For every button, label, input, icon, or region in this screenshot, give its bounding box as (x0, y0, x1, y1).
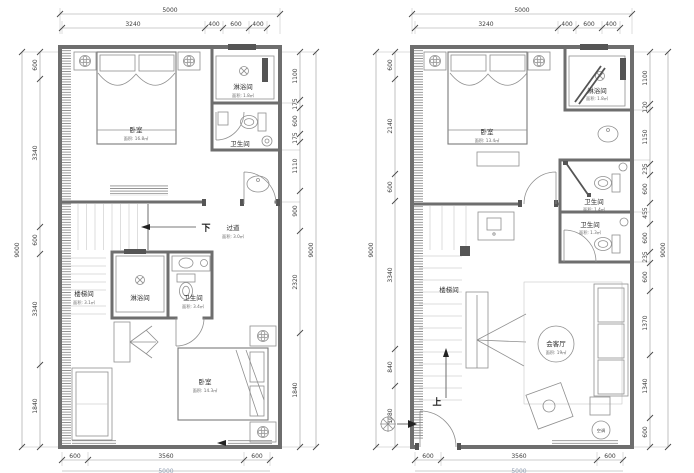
dim-top-total: 5000 (514, 7, 529, 14)
ceiling-fan-icon (430, 56, 441, 67)
right-plan-walls (412, 44, 632, 452)
lounge-chair (526, 383, 573, 429)
left-winder-stair (114, 322, 158, 362)
dim-bottom-seg-1: 600 (422, 453, 434, 460)
dim-left-seg-3: 600 (387, 181, 394, 193)
dim-bottom-seg-2: 3560 (158, 453, 173, 460)
dim-right-seg-6: 900 (292, 205, 299, 217)
dim-left-seg-1: 600 (32, 59, 39, 71)
right-wc-lower: 卫生间 面积: 1.3㎡ (564, 218, 628, 262)
right-living-room: 空调 会客厅 面积: 19㎡ (524, 282, 628, 439)
dim-bottom-seg-2: 3560 (511, 453, 526, 460)
dim-left-seg-5: 1840 (32, 398, 39, 413)
dim-top-seg-3: 600 (583, 21, 595, 28)
dim-left-seg-2: 3340 (32, 145, 39, 160)
right-wc-upper: 卫生间 面积: 1.4㎡ (563, 161, 627, 213)
dim-bottom-total: 5000 (158, 468, 173, 473)
floor-plans-canvas: 5000 3240 400 600 400 9000 600 3340 600 … (0, 0, 694, 473)
dim-right-seg-4: 175 (292, 132, 299, 144)
toilet-icon (595, 174, 621, 192)
dim-left-seg-4: 3340 (32, 301, 39, 316)
dim-top-seg-1: 3240 (125, 21, 140, 28)
room-label-shower-mid: 淋浴间 (130, 293, 150, 302)
dim-right-seg-7: 2320 (292, 274, 299, 289)
dim-right-total: 9000 (308, 242, 315, 257)
room-area-bedroom-top: 面积: 16.8㎡ (124, 135, 149, 142)
dim-bottom-seg-1: 600 (69, 453, 81, 460)
dim-right-seg-7: 600 (642, 232, 649, 244)
dim-right-seg-2: 175 (292, 98, 299, 110)
dim-right-seg-6: 455 (642, 207, 649, 219)
room-area-bedroom-bottom: 面积: 14.3㎡ (193, 387, 218, 394)
room-area-shower-top: 面积: 1.8㎡ (232, 92, 255, 99)
dim-right-seg-8: 1840 (292, 382, 299, 397)
ceiling-fan-icon (258, 427, 269, 438)
shower-head-icon (136, 276, 145, 285)
left-bedroom-top: 卧室 面积: 16.8㎡ (74, 52, 200, 196)
ceiling-fan-icon (258, 331, 269, 342)
dim-right-seg-1: 1100 (642, 70, 649, 85)
room-area-wc-mid: 面积: 3.4㎡ (182, 303, 205, 310)
dim-right-seg-9: 600 (642, 271, 649, 283)
room-area-shower: 面积: 1.8㎡ (586, 95, 609, 102)
sofa (594, 284, 628, 396)
up-arrow-icon (443, 348, 449, 357)
room-label-bedroom-top: 卧室 (130, 125, 144, 134)
ceiling-fan-icon (534, 56, 545, 67)
dim-right-seg-10: 1370 (642, 315, 649, 330)
dim-left-total: 9000 (14, 242, 21, 257)
room-area-wc-upper: 面积: 1.4㎡ (583, 206, 606, 213)
down-label: 下 (201, 223, 210, 234)
room-label-wc-upper: 卫生间 (584, 197, 604, 206)
dim-left-seg-3: 600 (32, 234, 39, 246)
ceiling-fan-icon (184, 56, 195, 67)
dim-right-seg-3: 600 (292, 115, 299, 127)
right-bedroom: 卧室 面积: 13.4㎡ (424, 52, 556, 204)
dim-top-seg-1: 3240 (478, 21, 493, 28)
room-area-corridor: 面积: 3.0㎡ (222, 233, 245, 240)
room-label-wc-mid: 卫生间 (183, 293, 203, 302)
toilet-icon (241, 113, 267, 131)
room-label-bedroom: 卧室 (481, 127, 495, 136)
right-sink-alcove (598, 126, 618, 142)
toilet-icon (595, 235, 621, 253)
room-area-living: 面积: 19㎡ (546, 349, 567, 356)
shower-head-icon (240, 67, 249, 76)
left-corridor: 下 过道 面积: 3.0㎡ (78, 204, 245, 250)
room-label-bedroom-bottom: 卧室 (199, 377, 213, 386)
dim-right-total: 9000 (660, 242, 667, 257)
room-label-shower: 淋浴间 (587, 86, 607, 95)
right-stairwell: 上 楼梯间 (419, 206, 526, 408)
dim-left-seg-5: 840 (387, 361, 394, 373)
dim-top-seg-3: 600 (230, 21, 242, 28)
floor-plan-drawing: 5000 3240 400 600 400 9000 600 3340 600 … (0, 0, 694, 473)
dim-right-seg-12: 600 (642, 426, 649, 438)
dim-top-total: 5000 (162, 7, 177, 14)
dim-left-seg-2: 2140 (387, 118, 394, 133)
room-label-stairwell: 楼梯间 (74, 289, 94, 298)
dim-bottom-seg-3: 600 (604, 453, 616, 460)
dim-top-seg-2: 400 (208, 21, 220, 28)
floor-plan-left: 5000 3240 400 600 400 9000 600 3340 600 … (14, 7, 319, 473)
dim-right-seg-3: 1150 (642, 129, 649, 144)
dim-right-seg-2: 120 (642, 101, 649, 113)
left-sink-alcove (244, 172, 276, 204)
room-area-bedroom: 面积: 13.4㎡ (475, 137, 500, 144)
dim-top-seg-4: 400 (605, 21, 617, 28)
room-area-stairwell: 面积: 3.1㎡ (73, 299, 96, 306)
dim-right-seg-8: 235 (642, 251, 649, 263)
dim-bottom-seg-3: 600 (251, 453, 263, 460)
room-label-shower-top: 淋浴间 (233, 82, 253, 91)
dim-right-seg-5: 600 (642, 183, 649, 195)
dim-left-seg-4: 3340 (387, 267, 394, 282)
dim-right-seg-1: 1100 (292, 68, 299, 83)
ceiling-fan-icon (80, 56, 91, 67)
left-shower-top: 淋浴间 面积: 1.8㎡ (216, 56, 274, 99)
dim-left-seg-1: 600 (387, 59, 394, 71)
bed (178, 348, 268, 420)
dim-top-seg-4: 400 (252, 21, 264, 28)
left-wc-mid: 卫生间 面积: 3.4㎡ (172, 256, 210, 346)
right-shower: 淋浴间 面积: 1.8㎡ (569, 56, 626, 106)
dim-right-seg-5: 1110 (292, 158, 299, 173)
side-table (590, 397, 610, 415)
room-area-wc-lower: 面积: 1.3㎡ (579, 229, 602, 236)
room-label-stairwell: 楼梯间 (439, 285, 459, 294)
room-label-corridor: 过道 (227, 223, 241, 232)
room-label-living: 会客厅 (546, 339, 566, 348)
dim-right-seg-11: 1340 (642, 378, 649, 393)
ac-label: 空调 (597, 427, 605, 434)
room-label-wc-top: 卫生间 (230, 139, 250, 148)
down-arrow-icon (141, 224, 150, 230)
dim-bottom-total: 5000 (511, 468, 526, 473)
up-label: 上 (432, 396, 441, 408)
dim-right-seg-4: 235 (642, 163, 649, 175)
room-label-wc-lower: 卫生间 (580, 220, 600, 229)
left-plan-walls (60, 44, 280, 447)
left-bedroom-bottom: 卧室 面积: 14.3㎡ (72, 326, 276, 442)
left-wc-top: 卫生间 (216, 112, 272, 148)
left-shower-mid: 淋浴间 (116, 249, 164, 312)
dim-left-total: 9000 (368, 242, 375, 257)
dim-top-seg-2: 400 (561, 21, 573, 28)
floor-plan-right: 5000 3240 400 600 400 9000 600 2140 600 … (368, 7, 671, 473)
